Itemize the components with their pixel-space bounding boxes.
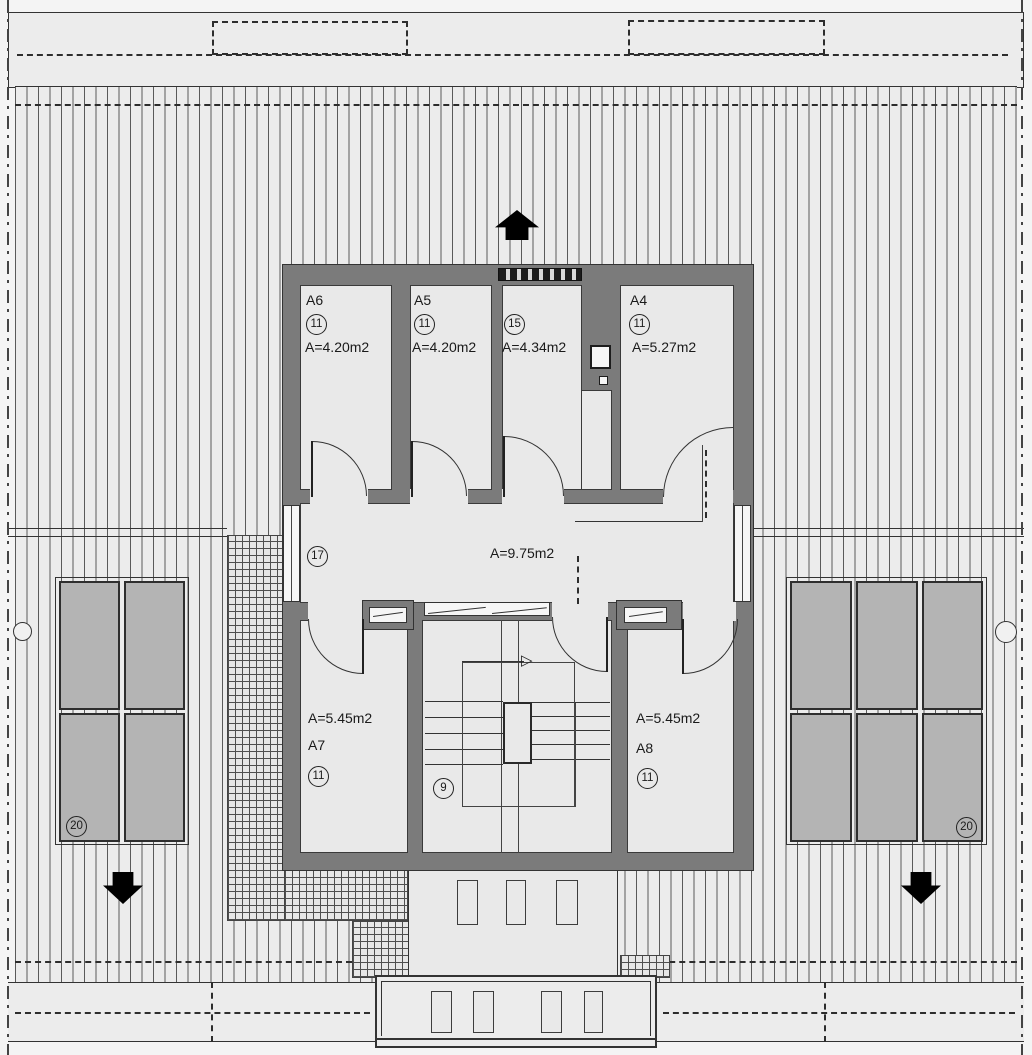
- eaves-dashed-right: [663, 1012, 1015, 1014]
- roof-dashed-line-bottom-right: [629, 961, 1017, 963]
- room-a5-area: A=4.20m2: [412, 339, 476, 355]
- room-a4-name: A4: [630, 292, 647, 308]
- balcony-post: [473, 991, 494, 1033]
- stair-divider: [575, 703, 576, 807]
- solar-panel: [790, 713, 852, 842]
- balcony-post: [457, 880, 478, 925]
- door-leaf-a5: [411, 441, 413, 497]
- side-ridge-line-right-1: [753, 528, 1024, 529]
- balcony-post: [506, 880, 526, 925]
- hallway-tag: 17: [307, 546, 328, 567]
- solar-panel: [59, 581, 120, 710]
- side-ridge-line-left-1: [8, 528, 227, 529]
- solar-array-left-tag: 20: [66, 816, 87, 837]
- room-15-extension: [582, 390, 612, 490]
- door-leaf-stair: [606, 617, 608, 672]
- room-a4-area: A=5.27m2: [632, 339, 696, 355]
- room-a8-name: A8: [636, 740, 653, 756]
- room-a6-tag: 11: [306, 314, 327, 335]
- room-a7-tag: 11: [308, 766, 329, 787]
- balcony-post: [584, 991, 603, 1033]
- room-a5-tag: 11: [414, 314, 435, 335]
- balcony-post: [431, 991, 452, 1033]
- solar-panel: [124, 581, 185, 710]
- room-a6-area: A=4.20m2: [305, 339, 369, 355]
- room-15-tag: 15: [504, 314, 525, 335]
- stairwell-tag: 9: [433, 778, 454, 799]
- ridge-dashed-line: [17, 54, 1008, 56]
- room-a8-tag: 11: [637, 768, 658, 789]
- height-line-horizontal: [575, 521, 703, 522]
- ridge-vent-strip: [498, 268, 582, 281]
- boundary-line-left: [7, 0, 9, 1055]
- stair-outline: [462, 662, 575, 807]
- room-a6-name: A6: [306, 292, 323, 308]
- stair-direction-line: [462, 661, 524, 662]
- window-hall-left-mullion: [291, 506, 292, 601]
- roof-dashed-line-bottom-left: [15, 961, 352, 963]
- height-line-dashed-hall: [577, 556, 579, 604]
- room-a7-name: A7: [308, 737, 325, 753]
- balcony-post: [541, 991, 562, 1033]
- side-ridge-line-left-2: [8, 536, 227, 537]
- chimney-vent: [599, 376, 608, 385]
- roof-vent-right-icon: [995, 621, 1017, 643]
- door-leaf-a8: [682, 619, 684, 674]
- solar-panel: [856, 713, 918, 842]
- solar-panel: [124, 713, 185, 842]
- balcony-inner-line: [381, 981, 651, 1036]
- window-hall-right-mullion: [742, 506, 743, 601]
- balcony-post: [556, 880, 578, 925]
- door-leaf-a6: [311, 441, 313, 497]
- eaves-joint-right: [824, 982, 826, 1042]
- room-15-area: A=4.34m2: [502, 339, 566, 355]
- chimney-flue: [590, 345, 611, 369]
- room-a5-name: A5: [414, 292, 431, 308]
- stair-direction-arrow-icon: ▷: [521, 653, 533, 668]
- door-leaf-15: [503, 436, 505, 497]
- solar-panel: [790, 581, 852, 710]
- room-a4-tag: 11: [629, 314, 650, 335]
- room-a7-area: A=5.45m2: [308, 710, 372, 726]
- terrace-hatch-lower: [352, 921, 413, 978]
- terrace-hatch-main: [227, 535, 285, 921]
- solar-panel: [856, 581, 918, 710]
- eaves-dashed-left: [15, 1012, 370, 1014]
- floor-plan: ▷ A6 11 A=4.20m2 A5 11 A=4.20m2 15 A=4.3…: [0, 0, 1032, 1055]
- height-line-vertical: [702, 445, 703, 522]
- solar-panel: [922, 581, 983, 710]
- roof-vent-left-icon: [13, 622, 32, 641]
- eaves-joint-left: [211, 982, 213, 1042]
- terrace-hatch-under: [285, 870, 408, 921]
- balcony-bottom-line: [377, 1038, 655, 1040]
- roof-dashed-line-top: [15, 104, 1017, 106]
- room-a8-area: A=5.45m2: [636, 710, 700, 726]
- hallway-area: A=9.75m2: [490, 545, 554, 561]
- dormer-outline-right: [628, 20, 825, 55]
- dormer-outline-left: [212, 21, 408, 55]
- solar-array-right-tag: 20: [956, 817, 977, 838]
- boundary-line-right: [1021, 0, 1023, 1055]
- door-leaf-a7: [362, 619, 364, 674]
- side-ridge-line-right-2: [753, 536, 1024, 537]
- roof-ridge-band: [8, 12, 1024, 88]
- height-line-dashed-a4: [705, 450, 707, 518]
